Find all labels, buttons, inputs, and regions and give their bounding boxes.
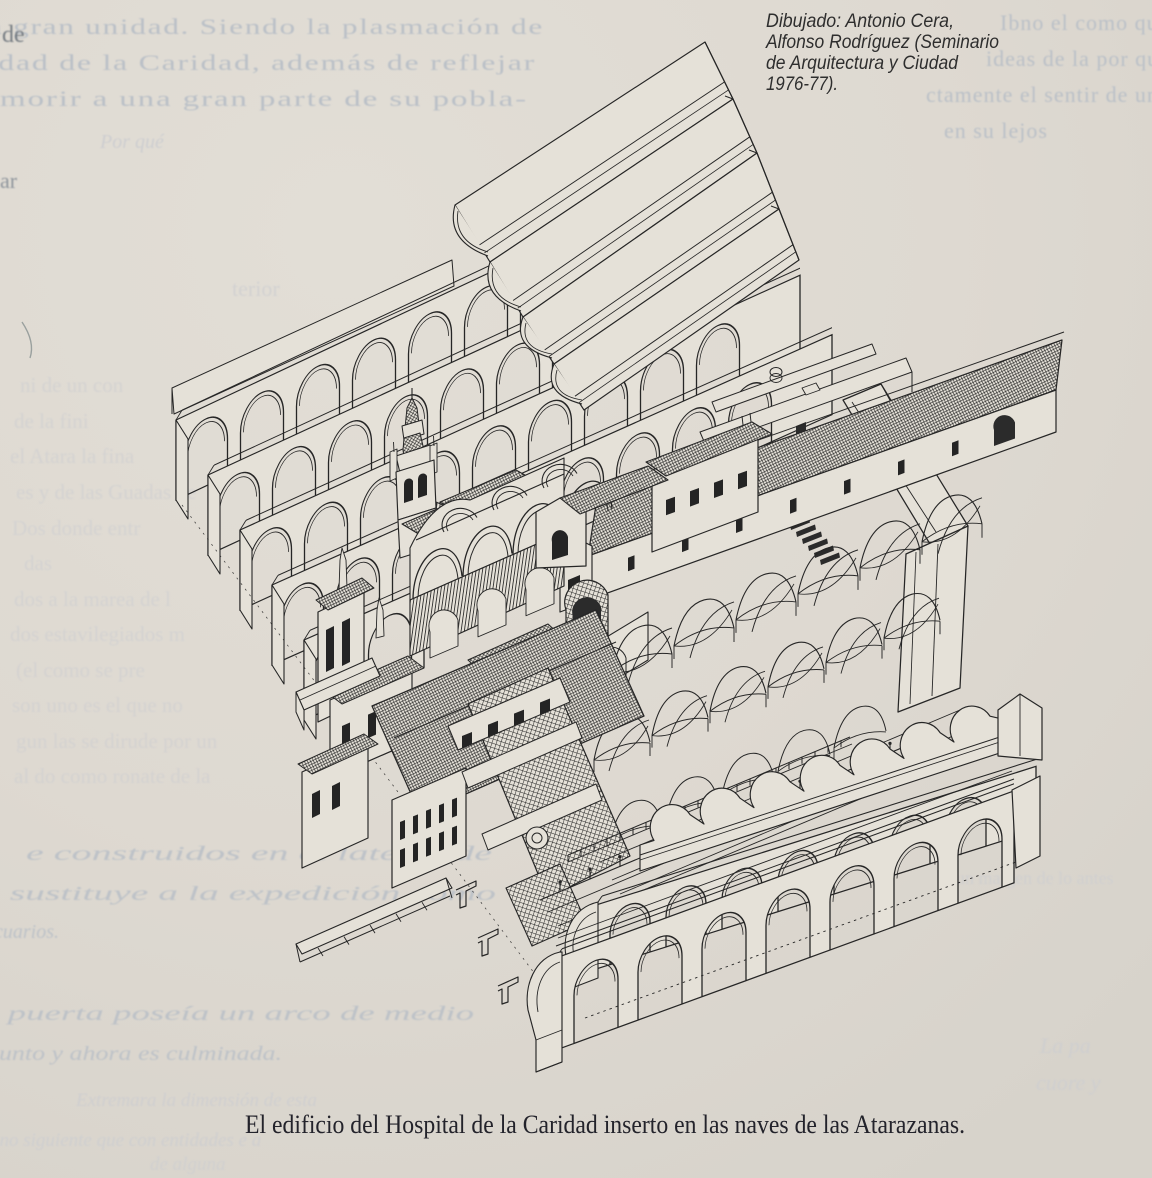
svg-text:el Atara la fina: el Atara la fina: [10, 444, 135, 468]
svg-text:Extremara la dimensión de: Extremara la dimensión de esta: [75, 1090, 317, 1111]
svg-text:a gran unidad. Siendo la plasm: a gran unidad. Siendo la plasmación de: [0, 14, 544, 39]
svg-text:Dibujado: Antonio Cera,: Dibujado: Antonio Cera,: [766, 11, 954, 32]
svg-text:a puerta poseía un arco de: a puerta poseía un arco de medio: [0, 1003, 474, 1025]
svg-text:La pa: La pa: [1039, 1033, 1091, 1058]
svg-text:1976-77).: 1976-77).: [766, 74, 838, 95]
svg-text:vio morir a una gran parte de: vio morir a una gran parte de su pobla-: [0, 86, 528, 111]
svg-text:de Arquitectura y Ciudad: de Arquitectura y Ciudad: [766, 53, 959, 74]
svg-text:nidad de la Caridad, además de: nidad de la Caridad, además de reflejar: [0, 50, 536, 75]
svg-text:son uno es el que no: son uno es el que no: [12, 693, 183, 717]
svg-text:ideas de la por que en el Herr: ideas de la por que en el Herra: [986, 46, 1152, 71]
svg-text:punto y ahora es culminada.: punto y ahora es culminada.: [0, 1043, 282, 1065]
svg-text:ni de un con: ni de un con: [20, 373, 124, 397]
svg-text:cuore y: cuore y: [1036, 1070, 1101, 1095]
svg-text:un margen de lo antes: un margen de lo antes: [956, 868, 1114, 888]
svg-text:Ibno el como que esta posee un: Ibno el como que esta posee una: [1000, 10, 1152, 35]
svg-text:uno siguiente que con enti: uno siguiente que con entidades e a: [0, 1130, 261, 1151]
svg-text:terior: terior: [232, 276, 280, 301]
svg-text:dos estavilegiados m: dos estavilegiados m: [10, 622, 185, 646]
svg-text:das: das: [24, 551, 52, 575]
svg-text:(el como se pre: (el como se pre: [16, 658, 145, 682]
svg-text:ctamente el sentir de una soci: ctamente el sentir de una sociedad que: [926, 82, 1152, 107]
svg-text:gun las se dirude por un: gun las se dirude por un: [16, 729, 218, 753]
svg-text:de alguna: de alguna: [150, 1154, 225, 1175]
svg-text:de la fini: de la fini: [14, 409, 89, 433]
svg-text:al do como ronate de la: al do como ronate de la: [14, 764, 211, 788]
svg-text:Alfonso Rodríguez (Seminari: Alfonso Rodríguez (Seminario: [765, 32, 999, 53]
svg-text:dos a la marea de l: dos a la marea de l: [14, 587, 171, 611]
svg-text:Por qué: Por qué: [99, 131, 165, 153]
svg-text:El edificio del Hospital de la: El edificio del Hospital de la Caridad i…: [245, 1110, 965, 1139]
svg-text:de: de: [2, 22, 25, 48]
svg-text:en su lejos: en su lejos: [944, 118, 1048, 143]
svg-text:ar: ar: [0, 168, 18, 193]
svg-text:cuarios.: cuarios.: [0, 921, 59, 943]
svg-text:es y de las Guadas de: es y de las Guadas de: [16, 480, 196, 504]
svg-text:Dos donde entr: Dos donde entr: [12, 516, 140, 540]
